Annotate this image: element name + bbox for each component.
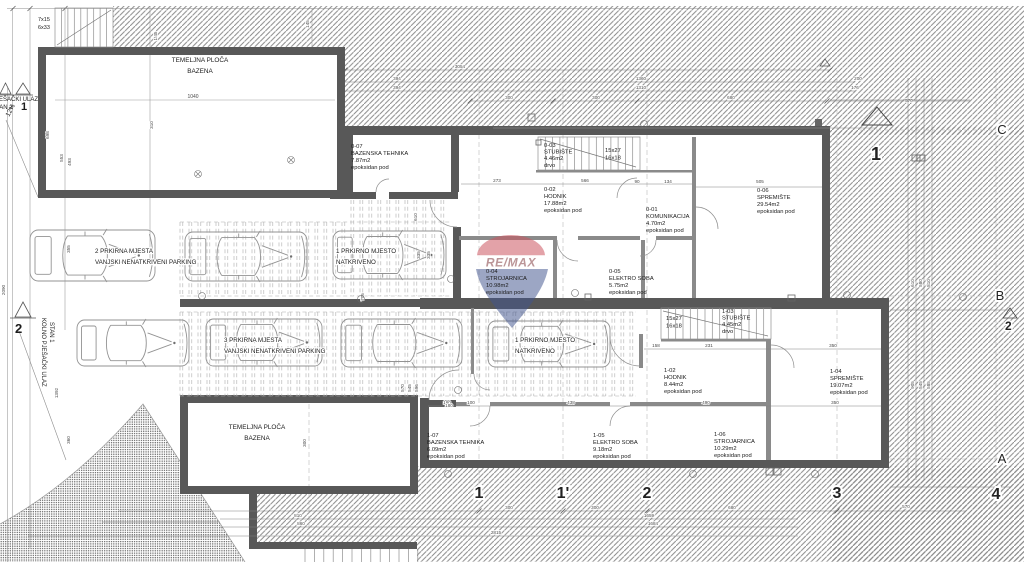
svg-text:1360: 1360: [636, 76, 647, 81]
svg-text:545: 545: [407, 384, 412, 392]
svg-text:1: 1: [871, 144, 881, 164]
svg-text:PJEŠAČKI ULAZ: PJEŠAČKI ULAZ: [0, 96, 38, 103]
svg-text:15x2716x18: 15x2716x18: [666, 316, 682, 330]
svg-text:300: 300: [591, 505, 599, 510]
svg-text:1659: 1659: [644, 513, 655, 518]
svg-text:553: 553: [59, 154, 64, 162]
svg-text:1310: 1310: [636, 85, 647, 90]
svg-text:680: 680: [728, 505, 736, 510]
svg-text:TEMELJNA PLOČA: TEMELJNA PLOČA: [229, 422, 286, 431]
svg-text:493: 493: [67, 158, 72, 166]
svg-text:C: C: [997, 122, 1006, 137]
svg-text:335: 335: [426, 251, 431, 259]
svg-text:3: 3: [833, 485, 842, 502]
svg-text:438: 438: [567, 400, 575, 405]
svg-text:585: 585: [926, 381, 931, 389]
svg-text:6x33: 6x33: [38, 25, 50, 31]
svg-text:570: 570: [400, 384, 405, 392]
svg-text:610: 610: [910, 279, 915, 287]
svg-text:TEMELJNA PLOČA: TEMELJNA PLOČA: [172, 55, 229, 64]
svg-text:580: 580: [918, 279, 923, 287]
svg-text:7x15: 7x15: [38, 17, 50, 23]
svg-text:680: 680: [727, 95, 735, 100]
svg-text:394: 394: [393, 76, 401, 81]
svg-text:1684: 1684: [648, 521, 659, 526]
svg-text:1': 1': [557, 485, 570, 502]
svg-text:570: 570: [905, 98, 913, 103]
svg-text:145: 145: [305, 20, 310, 28]
svg-text:596: 596: [414, 384, 419, 392]
svg-text:310: 310: [149, 121, 154, 129]
svg-text:2: 2: [643, 485, 652, 502]
svg-text:RE/MAX: RE/MAX: [486, 256, 537, 270]
svg-text:300: 300: [505, 505, 513, 510]
svg-text:A: A: [998, 451, 1007, 466]
svg-text:3054: 3054: [455, 64, 466, 69]
svg-text:100: 100: [467, 400, 475, 405]
svg-text:KOLNO PJEŠAČKI ULAZ: KOLNO PJEŠAČKI ULAZ: [40, 318, 47, 387]
svg-text:1.45: 1.45: [153, 31, 158, 40]
svg-text:90: 90: [634, 179, 640, 184]
svg-text:2: 2: [1005, 319, 1012, 333]
svg-text:300: 300: [302, 439, 307, 447]
svg-text:1392: 1392: [54, 387, 59, 398]
svg-text:BAZENA: BAZENA: [187, 68, 213, 75]
svg-text:2815: 2815: [491, 530, 502, 535]
svg-text:860: 860: [297, 521, 305, 526]
svg-text:273: 273: [493, 178, 501, 183]
svg-text:158: 158: [652, 343, 660, 348]
svg-text:1: 1: [475, 485, 484, 502]
svg-text:1040: 1040: [187, 94, 198, 100]
svg-text:570: 570: [902, 504, 910, 509]
svg-text:300: 300: [505, 95, 513, 100]
svg-text:300: 300: [592, 95, 600, 100]
svg-text:200: 200: [854, 76, 862, 81]
svg-text:2: 2: [15, 321, 22, 336]
svg-text:545: 545: [918, 381, 923, 389]
svg-text:180: 180: [445, 403, 453, 408]
svg-text:STAN 1: STAN 1: [48, 322, 54, 343]
svg-text:505: 505: [756, 179, 764, 184]
svg-text:350: 350: [831, 400, 839, 405]
svg-text:2090: 2090: [1, 284, 6, 295]
svg-text:394: 394: [393, 85, 401, 90]
svg-text:360: 360: [66, 436, 71, 444]
svg-text:610: 610: [413, 213, 418, 221]
svg-text:698: 698: [45, 131, 50, 139]
svg-text:905: 905: [910, 381, 915, 389]
svg-text:810: 810: [294, 513, 302, 518]
svg-text:B: B: [996, 288, 1005, 303]
svg-text:335: 335: [416, 251, 421, 259]
svg-text:1: 1: [21, 101, 27, 113]
svg-text:490: 490: [702, 400, 710, 405]
svg-text:810: 810: [926, 279, 931, 287]
svg-text:355: 355: [66, 245, 71, 253]
svg-text:BAZENA: BAZENA: [244, 435, 270, 442]
svg-text:15x2716x18: 15x2716x18: [605, 148, 621, 162]
svg-text:566: 566: [581, 178, 589, 183]
svg-text:4: 4: [992, 486, 1001, 503]
svg-text:231: 231: [705, 343, 713, 348]
svg-text:350: 350: [829, 343, 837, 348]
svg-text:134: 134: [664, 179, 672, 184]
svg-text:176: 176: [851, 85, 859, 90]
